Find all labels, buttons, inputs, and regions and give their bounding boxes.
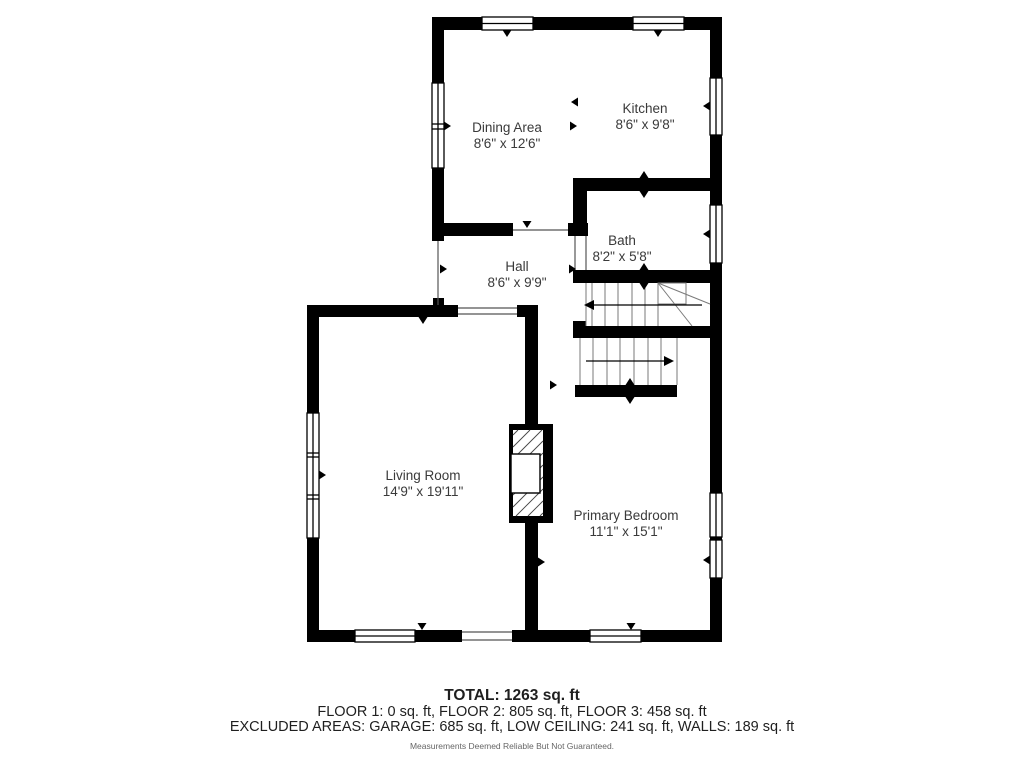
- room-label-dining-area: Dining Area 8'6" x 12'6": [472, 120, 542, 151]
- room-name: Hall: [487, 259, 546, 275]
- marker-bedroom-entry: [550, 381, 557, 390]
- room-name: Bath: [592, 233, 651, 249]
- marker-window-bedroom-bottom: [627, 623, 636, 630]
- marker-window-dining: [444, 122, 451, 131]
- room-dimensions: 8'6" x 9'9": [487, 275, 546, 291]
- marker-dining-hall-opening: [523, 221, 532, 228]
- window-top-right: [633, 17, 684, 30]
- room-dimensions: 11'1" x 15'1": [573, 524, 678, 540]
- floor-plan-page: Dining Area 8'6" x 12'6" Kitchen 8'6" x …: [0, 0, 1024, 768]
- marker-kitchen-bath-up: [640, 171, 649, 178]
- marker-center-wall: [538, 558, 545, 567]
- room-dimensions: 8'6" x 12'6": [472, 136, 542, 152]
- room-name: Kitchen: [615, 101, 674, 117]
- wall-bath-bottom: [573, 270, 722, 283]
- footer-floor-areas: FLOOR 1: 0 sq. ft, FLOOR 2: 805 sq. ft, …: [0, 704, 1024, 720]
- window-bedroom-right-upper: [710, 493, 722, 537]
- fireplace-firebox: [511, 454, 540, 493]
- footer-disclaimer: Measurements Deemed Reliable But Not Gua…: [0, 741, 1024, 751]
- window-dining-left: [432, 83, 444, 168]
- window-living-bottom: [355, 630, 415, 642]
- marker-stairs-bottom-up: [626, 378, 635, 385]
- footer-excluded-areas: EXCLUDED AREAS: GARAGE: 685 sq. ft, LOW …: [0, 719, 1024, 735]
- room-dimensions: 8'6" x 9'8": [615, 117, 674, 133]
- wall-stairs-bottom: [575, 385, 677, 397]
- room-label-bath: Bath 8'2" x 5'8": [592, 233, 651, 264]
- window-bath-right: [710, 205, 722, 263]
- marker-window-living-bottom: [418, 623, 427, 630]
- wall-kitchen-bath: [573, 178, 712, 191]
- marker-window-bath: [703, 230, 710, 239]
- window-bedroom-right-lower: [710, 540, 722, 578]
- marker-kitchen-bath-down: [640, 191, 649, 198]
- marker-window-top-left: [503, 30, 512, 37]
- wall-living-top: [307, 305, 458, 317]
- marker-bath-bottom-down: [640, 283, 649, 290]
- wall-dining-hall: [432, 223, 513, 236]
- wall-stairs-middle: [573, 326, 712, 338]
- marker-hall-left: [440, 265, 447, 274]
- room-name: Primary Bedroom: [573, 508, 678, 524]
- room-label-living-room: Living Room 14'9" x 19'11": [383, 468, 464, 499]
- room-name: Living Room: [383, 468, 464, 484]
- marker-window-bedroom-right: [703, 556, 710, 565]
- marker-window-kitchen: [703, 102, 710, 111]
- footer-total-area: TOTAL: 1263 sq. ft: [0, 687, 1024, 705]
- marker-dining-kitchen-a: [571, 98, 578, 107]
- room-label-hall: Hall 8'6" x 9'9": [487, 259, 546, 290]
- marker-window-top-right: [654, 30, 663, 37]
- room-dimensions: 8'2" x 5'8": [592, 249, 651, 265]
- wall-center-upper: [525, 305, 538, 425]
- marker-stairs-bottom-down: [626, 397, 635, 404]
- wall-dining-hall-stub: [568, 223, 588, 236]
- window-kitchen-right: [710, 78, 722, 135]
- marker-living-top: [419, 317, 428, 324]
- window-living-left: [307, 413, 319, 538]
- marker-bath-bottom-up: [640, 263, 649, 270]
- room-label-primary-bedroom: Primary Bedroom 11'1" x 15'1": [573, 508, 678, 539]
- wall-stairs-middle-stub: [573, 321, 586, 338]
- room-name: Dining Area: [472, 120, 542, 136]
- room-dimensions: 14'9" x 19'11": [383, 484, 464, 500]
- wall-center-lower: [525, 522, 538, 634]
- stair-arrowhead-right: [664, 356, 674, 366]
- window-bedroom-bottom: [590, 630, 641, 642]
- marker-window-living-left: [319, 471, 326, 480]
- floor-plan-drawing: [0, 0, 1024, 768]
- room-label-kitchen: Kitchen 8'6" x 9'8": [615, 101, 674, 132]
- marker-dining-kitchen-b: [570, 122, 577, 131]
- window-top-left: [482, 17, 533, 30]
